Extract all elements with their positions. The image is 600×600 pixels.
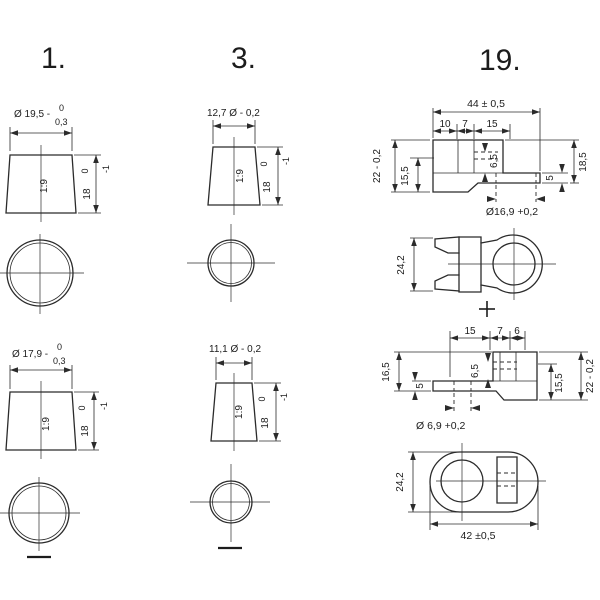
segment-b-label: 7: [462, 119, 468, 130]
height-label: 24,2: [395, 472, 406, 492]
diameter-label: 12,7 Ø - 0,2: [207, 108, 260, 119]
diameter-label: 11,1 Ø - 0,2: [209, 344, 262, 355]
segment-a-label: 10: [439, 119, 451, 130]
segment-c-label: 15: [486, 119, 498, 130]
diameter-tolerance-lower: 0,3: [55, 117, 68, 127]
height-label: 24,2: [396, 255, 407, 275]
seat-height-label: 15,5: [554, 373, 565, 393]
tab-thickness-label: 5: [415, 383, 426, 389]
hole-depth-label: 6,5: [489, 154, 500, 168]
height-tolerance-upper: 0: [77, 405, 87, 410]
height-tolerance-upper: 0: [257, 396, 267, 401]
segment-b-label: 7: [497, 326, 503, 337]
taper-label: 1:9: [235, 169, 246, 183]
hole-depth-label: 6,5: [470, 364, 481, 378]
hole-diameter-label: Ø16,9 +0,2: [486, 206, 538, 218]
sheet-background: [0, 0, 600, 600]
height-tolerance-upper: 0: [259, 161, 269, 166]
diameter-tolerance-lower: 0,3: [53, 356, 66, 366]
height-label: 18: [80, 425, 91, 437]
height-tolerance-lower: -1: [101, 165, 111, 173]
height-tolerance-lower: -1: [281, 157, 291, 165]
height-left-label: 22 - 0,2: [372, 149, 383, 183]
segment-a-label: 15: [464, 326, 476, 337]
taper-label: 1:9: [41, 417, 52, 431]
seat-height-label: 15,5: [400, 166, 411, 186]
segment-c-label: 6: [514, 326, 520, 337]
hole-diameter-label: Ø 6,9 +0,2: [416, 420, 465, 432]
tab-thickness-label: 5: [545, 175, 556, 181]
terminal-drawing-sheet: 1. Ø 19,5 - 0 0,3 1:9 18 0 -1: [0, 0, 600, 600]
taper-label: 1:9: [39, 179, 50, 193]
height-tolerance-lower: -1: [99, 402, 109, 410]
section-heading-3: 3.: [231, 42, 256, 75]
diameter-tolerance-upper: 0: [57, 342, 62, 352]
height-right-label: 18,5: [578, 152, 589, 172]
height-tolerance-upper: 0: [80, 168, 90, 173]
height-tolerance-lower: -1: [279, 393, 289, 401]
height-label: 18: [82, 188, 93, 200]
diameter-tolerance-upper: 0: [59, 103, 64, 113]
height-left-label: 16,5: [381, 362, 392, 382]
height-label: 18: [260, 417, 271, 429]
section-heading-19: 19.: [479, 44, 521, 77]
section-heading-1: 1.: [41, 42, 66, 75]
overall-width-label: 44 ± 0,5: [467, 98, 505, 110]
diameter-label: Ø 17,9 -: [12, 349, 48, 360]
taper-label: 1:9: [234, 405, 245, 419]
height-right-label: 22 - 0,2: [585, 359, 596, 393]
diameter-label: Ø 19,5 -: [14, 109, 50, 120]
overall-width-label: 42 ±0,5: [461, 530, 496, 542]
height-label: 18: [262, 181, 273, 193]
